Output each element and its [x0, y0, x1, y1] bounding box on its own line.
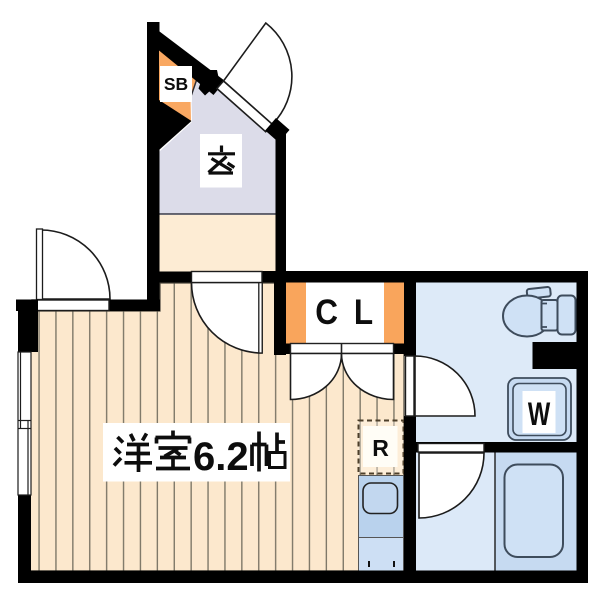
svg-text:W: W: [528, 397, 551, 432]
svg-text:6.2: 6.2: [193, 435, 249, 479]
svg-text:SB: SB: [164, 74, 188, 94]
svg-text:R: R: [372, 435, 389, 461]
svg-text:C L: C L: [315, 294, 377, 333]
